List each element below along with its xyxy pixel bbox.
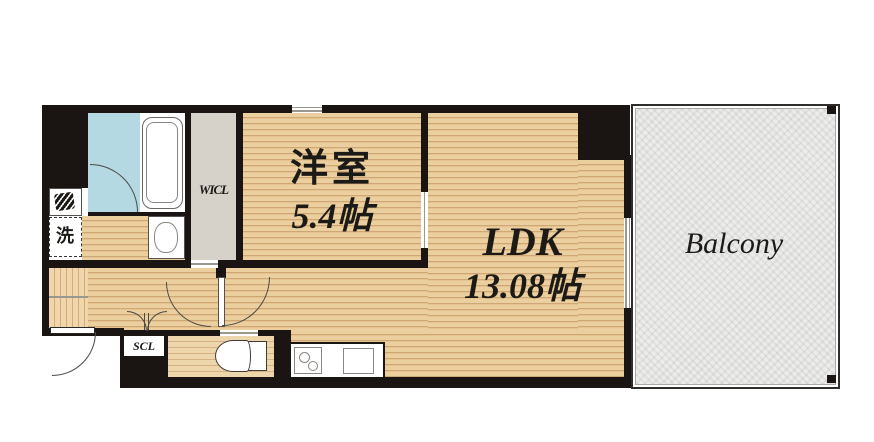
scl-door-line: [144, 313, 145, 330]
western-room-window: [292, 105, 322, 113]
toilet-bowl: [215, 340, 251, 372]
ldk-area: 13.08帖: [420, 268, 625, 304]
western-room-area: 5.4帖: [242, 198, 422, 234]
wall-corner-notch: [578, 105, 630, 160]
meter-box: [49, 188, 82, 216]
floorplan-canvas: 洗 洋室 5.4帖 LDK 13.08帖 Balcony WICL SCL: [0, 0, 874, 442]
window-line: [292, 107, 322, 109]
balcony-label: Balcony: [640, 229, 828, 259]
wicl-door-opening: [191, 260, 218, 268]
wall-block-top-left: [49, 113, 88, 188]
window-line: [625, 218, 627, 308]
partition-western-ldk-lower: [421, 248, 428, 268]
washbasin-bowl: [154, 222, 178, 253]
wicl-label: WICL: [188, 183, 239, 196]
sliding-door-line: [424, 192, 426, 248]
balcony-corner-mark-bottom: [827, 375, 836, 383]
outer-wall-right-upper: [624, 155, 631, 218]
outer-wall-top: [42, 105, 630, 113]
stove-icon: [294, 347, 322, 374]
entrance-door-arc: [52, 332, 96, 376]
door-line: [220, 332, 258, 334]
scl-label: SCL: [124, 340, 164, 352]
meter-box-icon: [54, 192, 75, 211]
balcony-corner-mark-top: [827, 106, 836, 114]
scl-door-line: [148, 313, 149, 330]
wall-toilet-top-right: [258, 330, 274, 336]
sliding-door-line: [191, 263, 218, 265]
hall-closet-floor: [49, 268, 88, 328]
window-line: [292, 110, 322, 112]
western-room-label: 洋室: [242, 150, 422, 188]
stove-burner: [299, 352, 310, 363]
balcony-sliding-window: [624, 218, 631, 308]
wall-toilet-top-left: [168, 330, 220, 336]
western-room-sliding-door: [421, 192, 428, 248]
outer-wall-right-lower: [624, 308, 631, 380]
washbasin-icon: [148, 216, 185, 259]
wall-hall-top-left: [49, 260, 191, 268]
bathtub-icon: [142, 117, 183, 209]
bathtub-inner: [146, 122, 178, 203]
toilet-door-opening: [220, 330, 258, 336]
kitchen-counter: [289, 342, 385, 379]
sink-icon: [343, 348, 374, 374]
laundry-label: 洗: [52, 227, 78, 245]
outer-wall-left: [42, 105, 49, 336]
window-line: [629, 218, 631, 308]
wall-hall-top-right: [218, 260, 421, 268]
partition-western-ldk-upper: [421, 113, 428, 192]
hall-closet-shelf-line: [49, 296, 88, 298]
ldk-label: LDK: [430, 222, 615, 262]
stove-burner: [308, 361, 318, 371]
